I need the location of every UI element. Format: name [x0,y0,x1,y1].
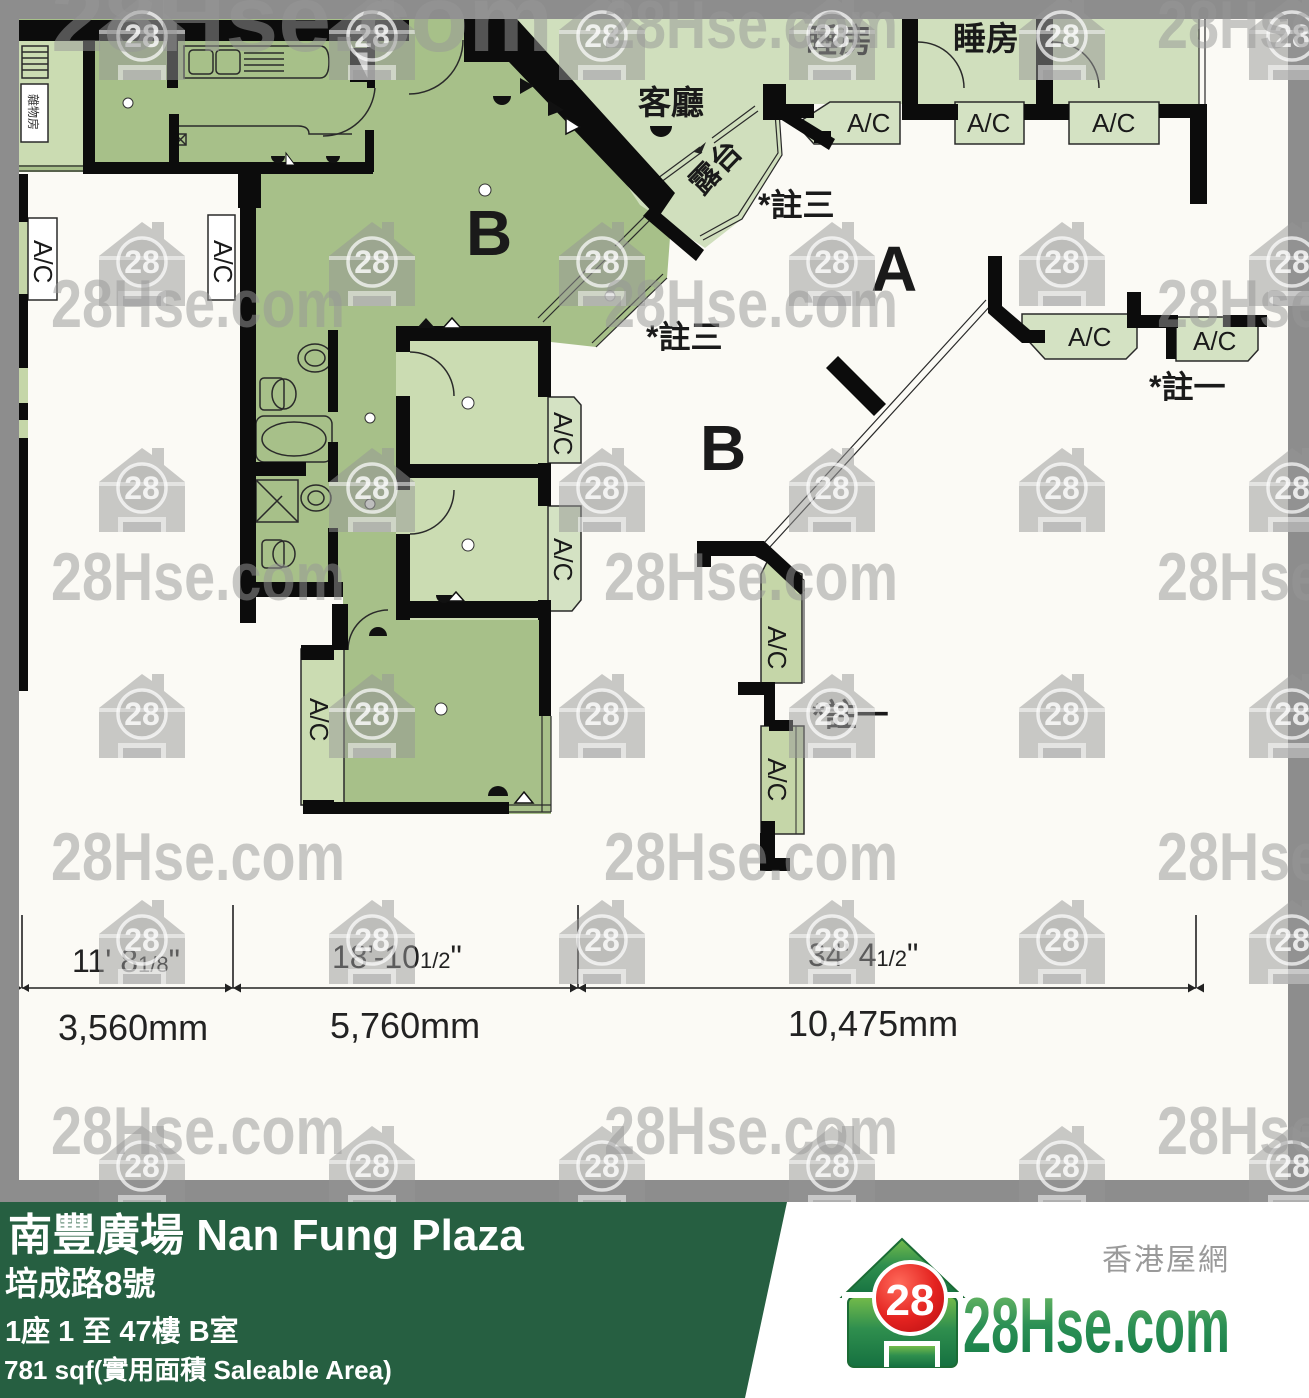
svg-text:28Hse.com: 28Hse.com [51,266,345,342]
svg-text:3,560mm: 3,560mm [58,1007,208,1048]
svg-text:28Hse.com: 28Hse.com [1157,266,1309,342]
svg-text:28: 28 [1044,696,1080,732]
svg-text:28: 28 [354,470,390,506]
svg-text:28: 28 [1044,470,1080,506]
svg-text:28Hse.com: 28Hse.com [1157,539,1309,615]
svg-text:1座 1 至 47樓 B室: 1座 1 至 47樓 B室 [5,1314,239,1348]
svg-text:781 sqf(實用面積 Saleable Area): 781 sqf(實用面積 Saleable Area) [4,1355,392,1385]
svg-text:28: 28 [1044,1148,1080,1184]
svg-text:28: 28 [886,1276,935,1325]
svg-text:B: B [700,412,746,484]
svg-text:28Hse.com: 28Hse.com [604,539,898,615]
svg-text:A/C: A/C [1068,322,1111,352]
svg-text:28: 28 [124,922,160,958]
svg-text:28Hse.com: 28Hse.com [604,0,898,63]
svg-text:睡房: 睡房 [953,20,1019,57]
svg-text:A/C: A/C [762,626,792,669]
svg-text:A/C: A/C [847,108,890,138]
svg-text:培成路8號: 培成路8號 [5,1265,155,1302]
svg-text:28: 28 [124,470,160,506]
svg-text:28: 28 [814,922,850,958]
svg-text:28: 28 [1044,922,1080,958]
svg-text:28Hse.com: 28Hse.com [604,266,898,342]
svg-text:28: 28 [1274,922,1309,958]
svg-text:28Hse.com: 28Hse.com [51,0,553,72]
svg-text:28Hse.com: 28Hse.com [963,1281,1230,1369]
svg-text:28Hse.com: 28Hse.com [51,1093,345,1169]
svg-text:28: 28 [354,922,390,958]
svg-text:*註一: *註一 [1149,369,1225,405]
svg-text:28: 28 [354,696,390,732]
svg-text:28Hse.com: 28Hse.com [604,819,898,895]
svg-text:A/C: A/C [762,758,792,801]
svg-text:28: 28 [1044,18,1080,54]
svg-text:雜物房: 雜物房 [26,94,41,130]
svg-text:*註三: *註三 [758,187,834,223]
svg-text:28Hse.com: 28Hse.com [604,1093,898,1169]
svg-text:南豐廣場 Nan Fung Plaza: 南豐廣場 Nan Fung Plaza [8,1211,524,1260]
svg-text:28: 28 [584,922,620,958]
svg-text:A/C: A/C [548,412,578,455]
svg-text:28Hse.com: 28Hse.com [51,819,345,895]
svg-text:10,475mm: 10,475mm [788,1003,958,1044]
svg-text:28: 28 [1044,244,1080,280]
svg-text:5,760mm: 5,760mm [330,1005,480,1046]
svg-text:28: 28 [124,696,160,732]
svg-text:28Hse.com: 28Hse.com [51,539,345,615]
svg-text:客廳: 客廳 [638,84,704,121]
svg-text:28: 28 [814,696,850,732]
svg-text:28Hse.com: 28Hse.com [1157,0,1309,63]
svg-text:28: 28 [354,1148,390,1184]
svg-text:28Hse.com: 28Hse.com [1157,1093,1309,1169]
svg-text:B: B [466,197,512,269]
svg-text:A/C: A/C [548,538,578,581]
svg-text:28: 28 [1274,696,1309,732]
svg-text:28: 28 [354,244,390,280]
svg-text:A/C: A/C [967,108,1010,138]
svg-text:A/C: A/C [1092,108,1135,138]
svg-text:28: 28 [814,470,850,506]
svg-text:28: 28 [584,696,620,732]
svg-text:28Hse.com: 28Hse.com [1157,819,1309,895]
svg-text:28: 28 [1274,470,1309,506]
svg-text:28: 28 [584,470,620,506]
